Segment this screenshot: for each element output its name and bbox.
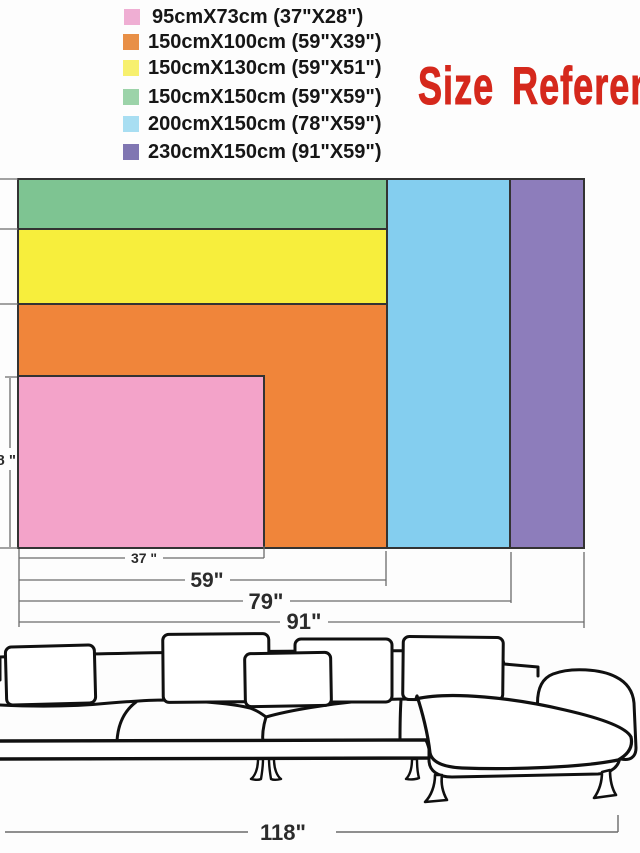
svg-text:91": 91" <box>287 609 322 634</box>
svg-text:59": 59" <box>190 569 223 592</box>
svg-text:79": 79" <box>249 589 284 614</box>
svg-text:28 ": 28 " <box>0 452 16 469</box>
svg-text:37 ": 37 " <box>131 550 157 566</box>
svg-text:118": 118" <box>260 820 306 845</box>
